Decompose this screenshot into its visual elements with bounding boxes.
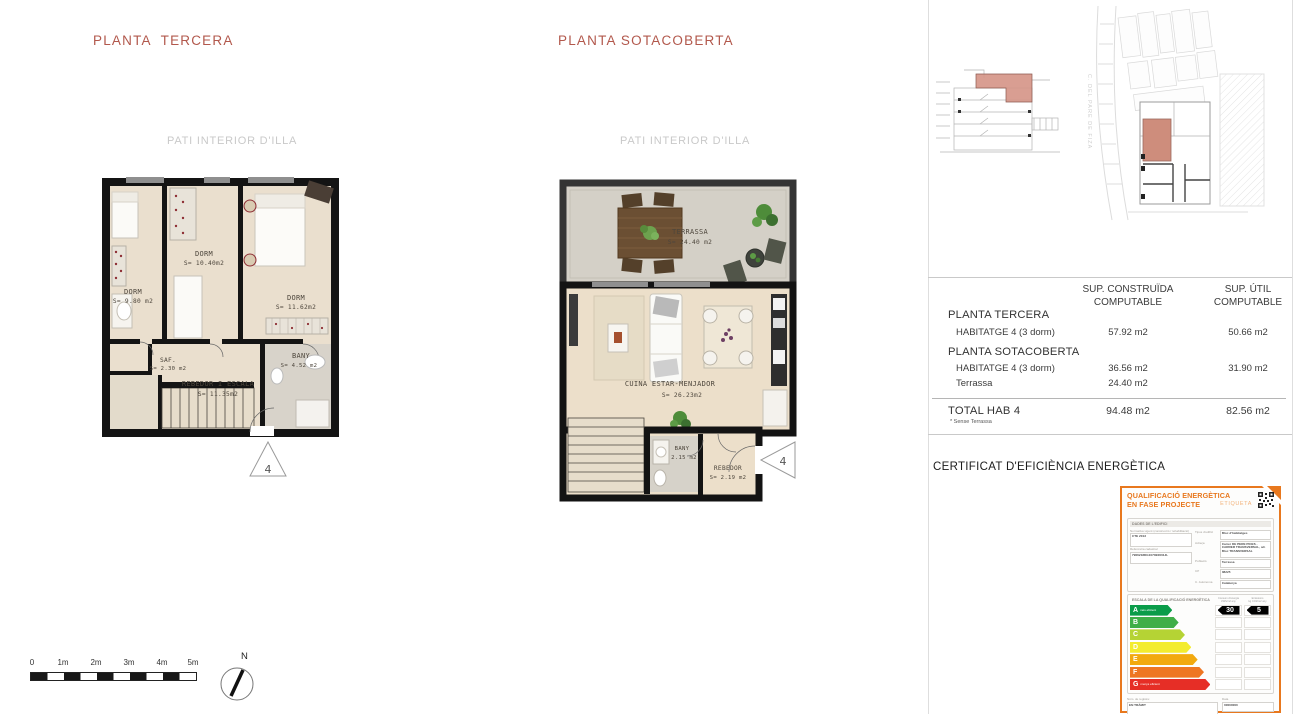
energy-cell-A-emissions: 5	[1244, 605, 1271, 616]
energy-card-header: QUALIFICACIÓ ENERGÈTICA EN FASE PROJECTE…	[1127, 492, 1274, 516]
energy-bar-E: E	[1130, 654, 1198, 665]
plan1-utility-floor	[110, 375, 158, 429]
energy-cells-F	[1215, 667, 1271, 678]
plan2-stairs	[568, 418, 650, 494]
field-value: 7906218DG1070E0001JL	[1130, 552, 1192, 564]
energy-bar-C: C	[1130, 629, 1185, 640]
table-footnote: * Sense Terrassa	[950, 419, 992, 425]
north-compass: N	[214, 646, 264, 708]
energy-cell-F-consum	[1215, 667, 1242, 678]
plan1-entry-opening	[250, 426, 274, 436]
room-label-dorm2: DORM	[195, 250, 213, 258]
energy-cells-D	[1215, 642, 1271, 653]
energy-scale-section: ESCALA DE LA QUALIFICACIÓ ENERGÈTICA Con…	[1127, 594, 1274, 694]
section-beam-dots	[958, 98, 1031, 137]
col-header-built: SUP. CONSTRUÏDA COMPUTABLE	[1076, 284, 1180, 309]
scale-bar-segments	[30, 672, 197, 681]
scale-tick: 4m	[156, 658, 167, 667]
total-useful: 82.56 m2	[1196, 405, 1298, 417]
plan-title-sotacoberta: PLANTA SOTACOBERTA	[558, 33, 734, 48]
energy-scale-row-D: D	[1130, 642, 1271, 653]
building-cluster	[1118, 5, 1221, 111]
compass-needle	[231, 670, 243, 696]
energy-letter-G: G	[1133, 681, 1138, 688]
table-rule	[932, 398, 1286, 399]
room-label-rebedor: REBEDOR I ESCALA	[182, 380, 255, 388]
room-area-dorm2: S= 10.40m2	[184, 260, 224, 267]
row-built: 36.56 m2	[1076, 363, 1180, 374]
floorplan-sotacoberta: TERRASSA S= 24.40 m2 CUINA ESTAR-MENJADO…	[558, 178, 800, 508]
scale-tick: 0	[30, 658, 34, 667]
room-area-bany: S= 4.52 m2	[281, 363, 318, 369]
col-header-useful: SUP. ÚTIL COMPUTABLE	[1196, 284, 1298, 309]
room-label-bany: BANY	[292, 352, 311, 360]
energy-letter-A: A	[1133, 607, 1138, 614]
row-label: HABITATGE 4 (3 dorm)	[956, 327, 1055, 338]
registry-value: EN TRÀMIT	[1127, 702, 1218, 714]
highlight-unit	[1143, 119, 1171, 161]
scale-tick: 2m	[90, 658, 101, 667]
energy-cells-E	[1215, 654, 1271, 665]
energy-scale-row-E: E	[1130, 654, 1271, 665]
pati-label-2: PATI INTERIOR D'ILLA	[620, 135, 750, 147]
row-useful: 31.90 m2	[1196, 363, 1298, 374]
room-label-bany2: BANY	[675, 446, 690, 452]
certificate-heading: CERTIFICAT D'EFICIÈNCIA ENERGÈTICA	[933, 461, 1165, 473]
room-label-dorm3: DORM	[287, 294, 305, 302]
energy-cells-A: 305	[1215, 605, 1271, 616]
field-label: Adreça	[1195, 542, 1218, 545]
total-label: TOTAL HAB 4	[948, 405, 1020, 417]
registry-section: Núm. de registre: EN TRÀMIT Data 0000000…	[1127, 697, 1274, 714]
total-built: 94.48 m2	[1076, 405, 1180, 417]
room-label-cuina: CUINA ESTAR-MENJADOR	[625, 380, 716, 388]
room-area-dorm1: S= 9.80 m2	[113, 298, 153, 305]
row-label: HABITATGE 4 (3 dorm)	[956, 363, 1055, 374]
energy-cell-C-emissions	[1244, 629, 1271, 640]
building-data-section: DADES DE L'EDIFICI Normativa vigent (con…	[1127, 518, 1274, 592]
energy-letter-F: F	[1133, 669, 1137, 676]
street-label: C. DEL PARE DE FIZA	[1086, 74, 1092, 149]
field-value: CTE 2013	[1130, 533, 1192, 547]
field-value: Terrassa	[1220, 559, 1271, 569]
qr-code	[1258, 492, 1274, 508]
room-label-dorm1: DORM	[124, 288, 142, 296]
energy-bar-G: Gmenys eficient	[1130, 679, 1210, 690]
room-area-rebedor: S= 11.35m2	[198, 391, 238, 398]
room-label-terrassa: TERRASSA	[672, 228, 709, 236]
unit-marker-2: 4	[780, 455, 787, 468]
field-value: Catalunya	[1220, 580, 1271, 590]
scale-bar: 0 1m 2m 3m 4m 5m	[30, 658, 196, 686]
field-label: Normativa vigent (construcció / rehabili…	[1130, 530, 1192, 533]
hatched-parcel	[1220, 74, 1264, 206]
energy-scale-rows: Amés eficient305BCDEFGmenys eficient	[1130, 605, 1271, 690]
room-area-dorm3: S= 11.62m2	[276, 304, 316, 311]
field-label: Tipus d'edifici	[1195, 531, 1218, 534]
siteplan-sketch: C. DEL PARE DE FIZA	[1070, 4, 1266, 222]
energy-scale-row-G: Gmenys eficient	[1130, 679, 1271, 690]
field-value: 08225	[1220, 569, 1271, 579]
section-highlight-unit	[976, 74, 1032, 102]
unit-marker-1: 4	[265, 463, 272, 476]
energy-bar-D: D	[1130, 642, 1191, 653]
energy-scale-title: ESCALA DE LA QUALIFICACIÓ ENERGÈTICA	[1130, 597, 1212, 603]
energy-cell-E-consum	[1215, 654, 1242, 665]
energy-cell-A-consum: 30	[1215, 605, 1242, 616]
energy-bar-F: F	[1130, 667, 1204, 678]
plan1-stairs	[162, 382, 254, 428]
row-built: 57.92 m2	[1076, 327, 1180, 338]
energy-scale-row-C: C	[1130, 629, 1271, 640]
room-area-saf: S= 2.30 m2	[150, 366, 187, 372]
floorplan-sheet: PLANTA TERCERA PATI INTERIOR D'ILLA PLAN…	[0, 0, 1298, 714]
energy-cell-G-emissions	[1244, 679, 1271, 690]
energy-cell-C-consum	[1215, 629, 1242, 640]
energy-scale-row-F: F	[1130, 667, 1271, 678]
plan1-windows	[126, 177, 294, 183]
date-value: 00000000	[1222, 702, 1274, 712]
energy-cell-B-consum	[1215, 617, 1242, 628]
room-label-saf: SAF.	[160, 357, 176, 364]
energy-scale-row-A: Amés eficient305	[1130, 605, 1271, 616]
energy-letter-B: B	[1133, 619, 1138, 626]
energy-cells-G	[1215, 679, 1271, 690]
plan-title-tercera: PLANTA TERCERA	[93, 33, 234, 48]
energy-scale-row-B: B	[1130, 617, 1271, 628]
areas-table: SUP. CONSTRUÏDA COMPUTABLE SUP. ÚTIL COM…	[928, 277, 1292, 435]
energy-cells-B	[1215, 617, 1271, 628]
energy-letter-C: C	[1133, 631, 1138, 638]
energy-cell-G-consum	[1215, 679, 1242, 690]
etiqueta-label: ETIQUETA	[1220, 501, 1252, 507]
floorplan-tercera: DORM S= 9.80 m2 DORM S= 10.40m2 DORM S= …	[100, 176, 345, 486]
room-area-rebedor2: S= 2.19 m2	[710, 475, 747, 481]
energy-bar-A: Amés eficient	[1130, 605, 1172, 616]
room-area-terrassa: S= 24.40 m2	[668, 239, 712, 246]
energy-value-emissions: 5	[1247, 606, 1269, 615]
energy-letter-E: E	[1133, 656, 1138, 663]
energy-bar-B: B	[1130, 617, 1179, 628]
scale-tick: 5m	[187, 658, 198, 667]
table-section-tercera: PLANTA TERCERA	[948, 309, 1049, 321]
unit-marker-triangle-2	[761, 442, 795, 478]
north-label: N	[241, 651, 248, 662]
energy-cell-D-consum	[1215, 642, 1242, 653]
row-useful: 50.66 m2	[1196, 327, 1298, 338]
room-area-bany2: 2.15 m2	[671, 455, 697, 461]
field-label: CP	[1195, 570, 1218, 573]
room-label-rebedor2: REBEDOR	[714, 465, 742, 472]
energy-cell-E-emissions	[1244, 654, 1271, 665]
field-label: Població	[1195, 560, 1218, 563]
table-section-sotacoberta: PLANTA SOTACOBERTA	[948, 346, 1079, 358]
row-label: Terrassa	[956, 378, 992, 389]
scale-tick: 1m	[57, 658, 68, 667]
energy-note-A: més eficient	[1140, 608, 1156, 612]
sheet-right-border	[1292, 0, 1293, 714]
building-data-title: DADES DE L'EDIFICI	[1130, 521, 1271, 527]
field-label: C. Autònoma	[1195, 581, 1218, 584]
energy-label-card: QUALIFICACIÓ ENERGÈTICA EN FASE PROJECTE…	[1120, 486, 1281, 713]
energy-cell-B-emissions	[1244, 617, 1271, 628]
field-value: Bloc d'habitatges	[1220, 530, 1271, 540]
energy-note-G: menys eficient	[1140, 682, 1159, 686]
room-area-cuina: S= 26.23m2	[662, 392, 702, 399]
plan2-bany-wall	[698, 434, 703, 496]
subject-block	[1140, 102, 1210, 204]
energy-value-consum: 30	[1218, 606, 1240, 615]
energy-cell-D-emissions	[1244, 642, 1271, 653]
energy-scale-col-headers: Consum d'energiakWh/m2 any Emissionskg C…	[1215, 597, 1271, 603]
pati-label-1: PATI INTERIOR D'ILLA	[167, 135, 297, 147]
row-built: 24.40 m2	[1076, 378, 1180, 389]
energy-cell-F-emissions	[1244, 667, 1271, 678]
energy-letter-D: D	[1133, 644, 1138, 651]
energy-cells-C	[1215, 629, 1271, 640]
field-value: Carrer DE PERE PICES - CARRER TRANSVERSA…	[1220, 541, 1271, 558]
section-sketch	[936, 60, 1064, 165]
scale-tick: 3m	[123, 658, 134, 667]
